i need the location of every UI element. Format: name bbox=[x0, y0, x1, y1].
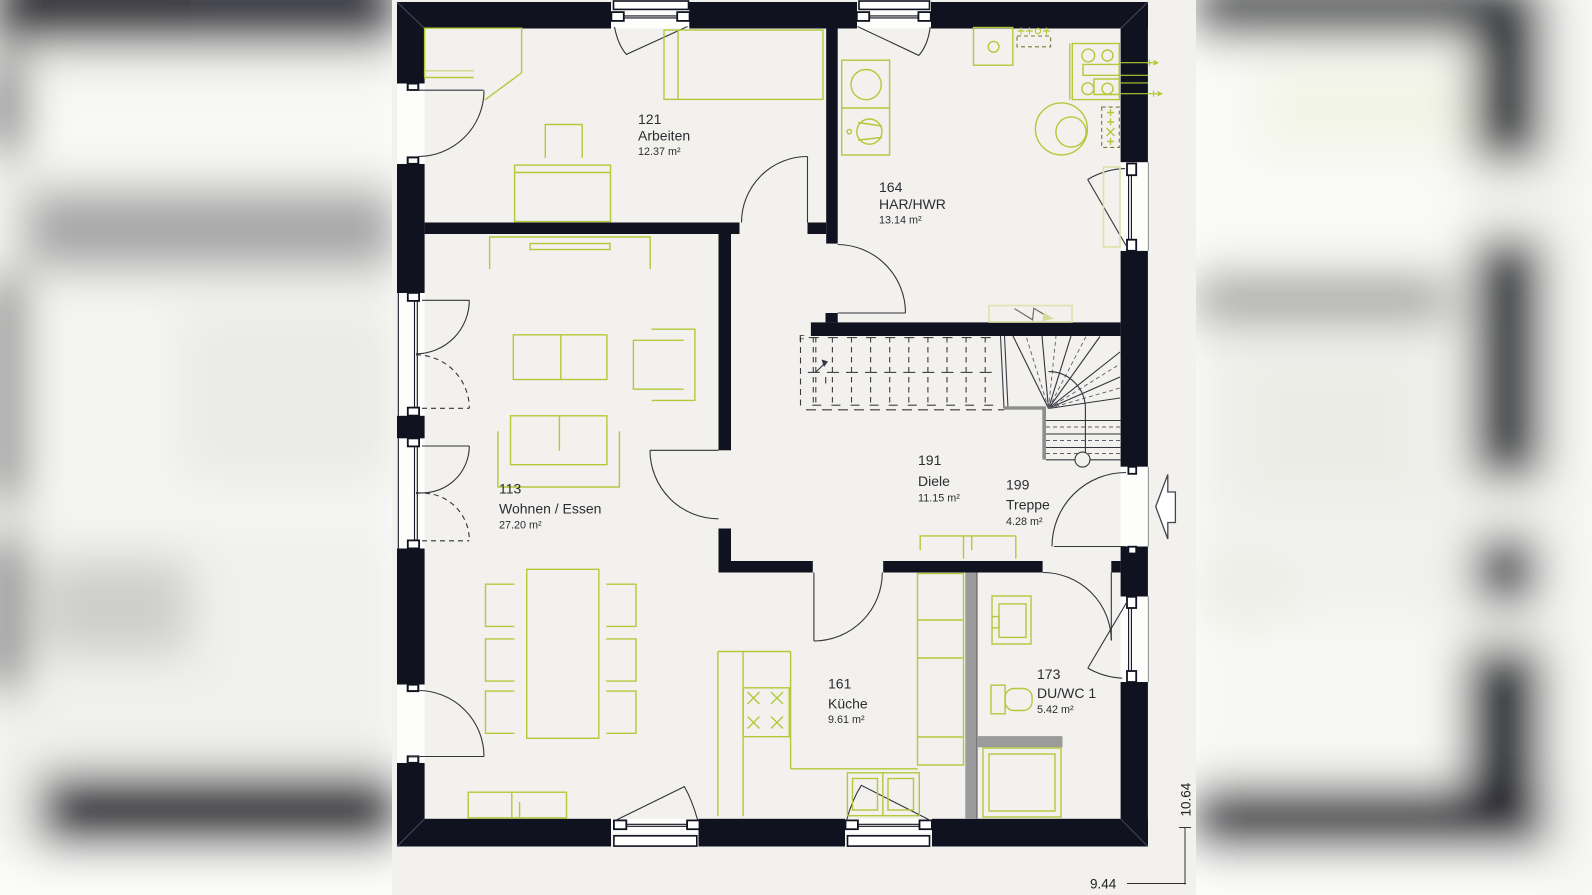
svg-text:Wohnen / Essen: Wohnen / Essen bbox=[499, 501, 601, 517]
svg-text:164: 164 bbox=[879, 179, 903, 195]
svg-text:161: 161 bbox=[828, 676, 852, 692]
svg-text:13.14 m²: 13.14 m² bbox=[879, 215, 922, 227]
svg-text:199: 199 bbox=[1006, 477, 1030, 493]
svg-text:9.61 m²: 9.61 m² bbox=[828, 714, 865, 726]
svg-text:121: 121 bbox=[638, 111, 662, 127]
svg-text:Diele: Diele bbox=[918, 473, 950, 489]
svg-text:27.20 m²: 27.20 m² bbox=[499, 520, 542, 532]
svg-text:Küche: Küche bbox=[828, 696, 868, 712]
svg-text:9.44: 9.44 bbox=[1090, 877, 1117, 892]
svg-text:173: 173 bbox=[1037, 666, 1061, 682]
svg-text:11.15 m²: 11.15 m² bbox=[918, 493, 960, 505]
svg-text:5.42 m²: 5.42 m² bbox=[1037, 704, 1074, 716]
svg-text:HAR/HWR: HAR/HWR bbox=[879, 196, 946, 212]
svg-text:Treppe: Treppe bbox=[1006, 497, 1050, 513]
svg-text:F: F bbox=[799, 334, 805, 344]
svg-text:12.37 m²: 12.37 m² bbox=[638, 146, 681, 158]
svg-text:4.28 m²: 4.28 m² bbox=[1006, 516, 1043, 528]
svg-text:10.64: 10.64 bbox=[1179, 782, 1194, 816]
svg-text:191: 191 bbox=[918, 452, 942, 468]
svg-text:DU/WC 1: DU/WC 1 bbox=[1037, 685, 1096, 701]
svg-text:Arbeiten: Arbeiten bbox=[638, 128, 690, 144]
svg-text:113: 113 bbox=[499, 481, 522, 497]
